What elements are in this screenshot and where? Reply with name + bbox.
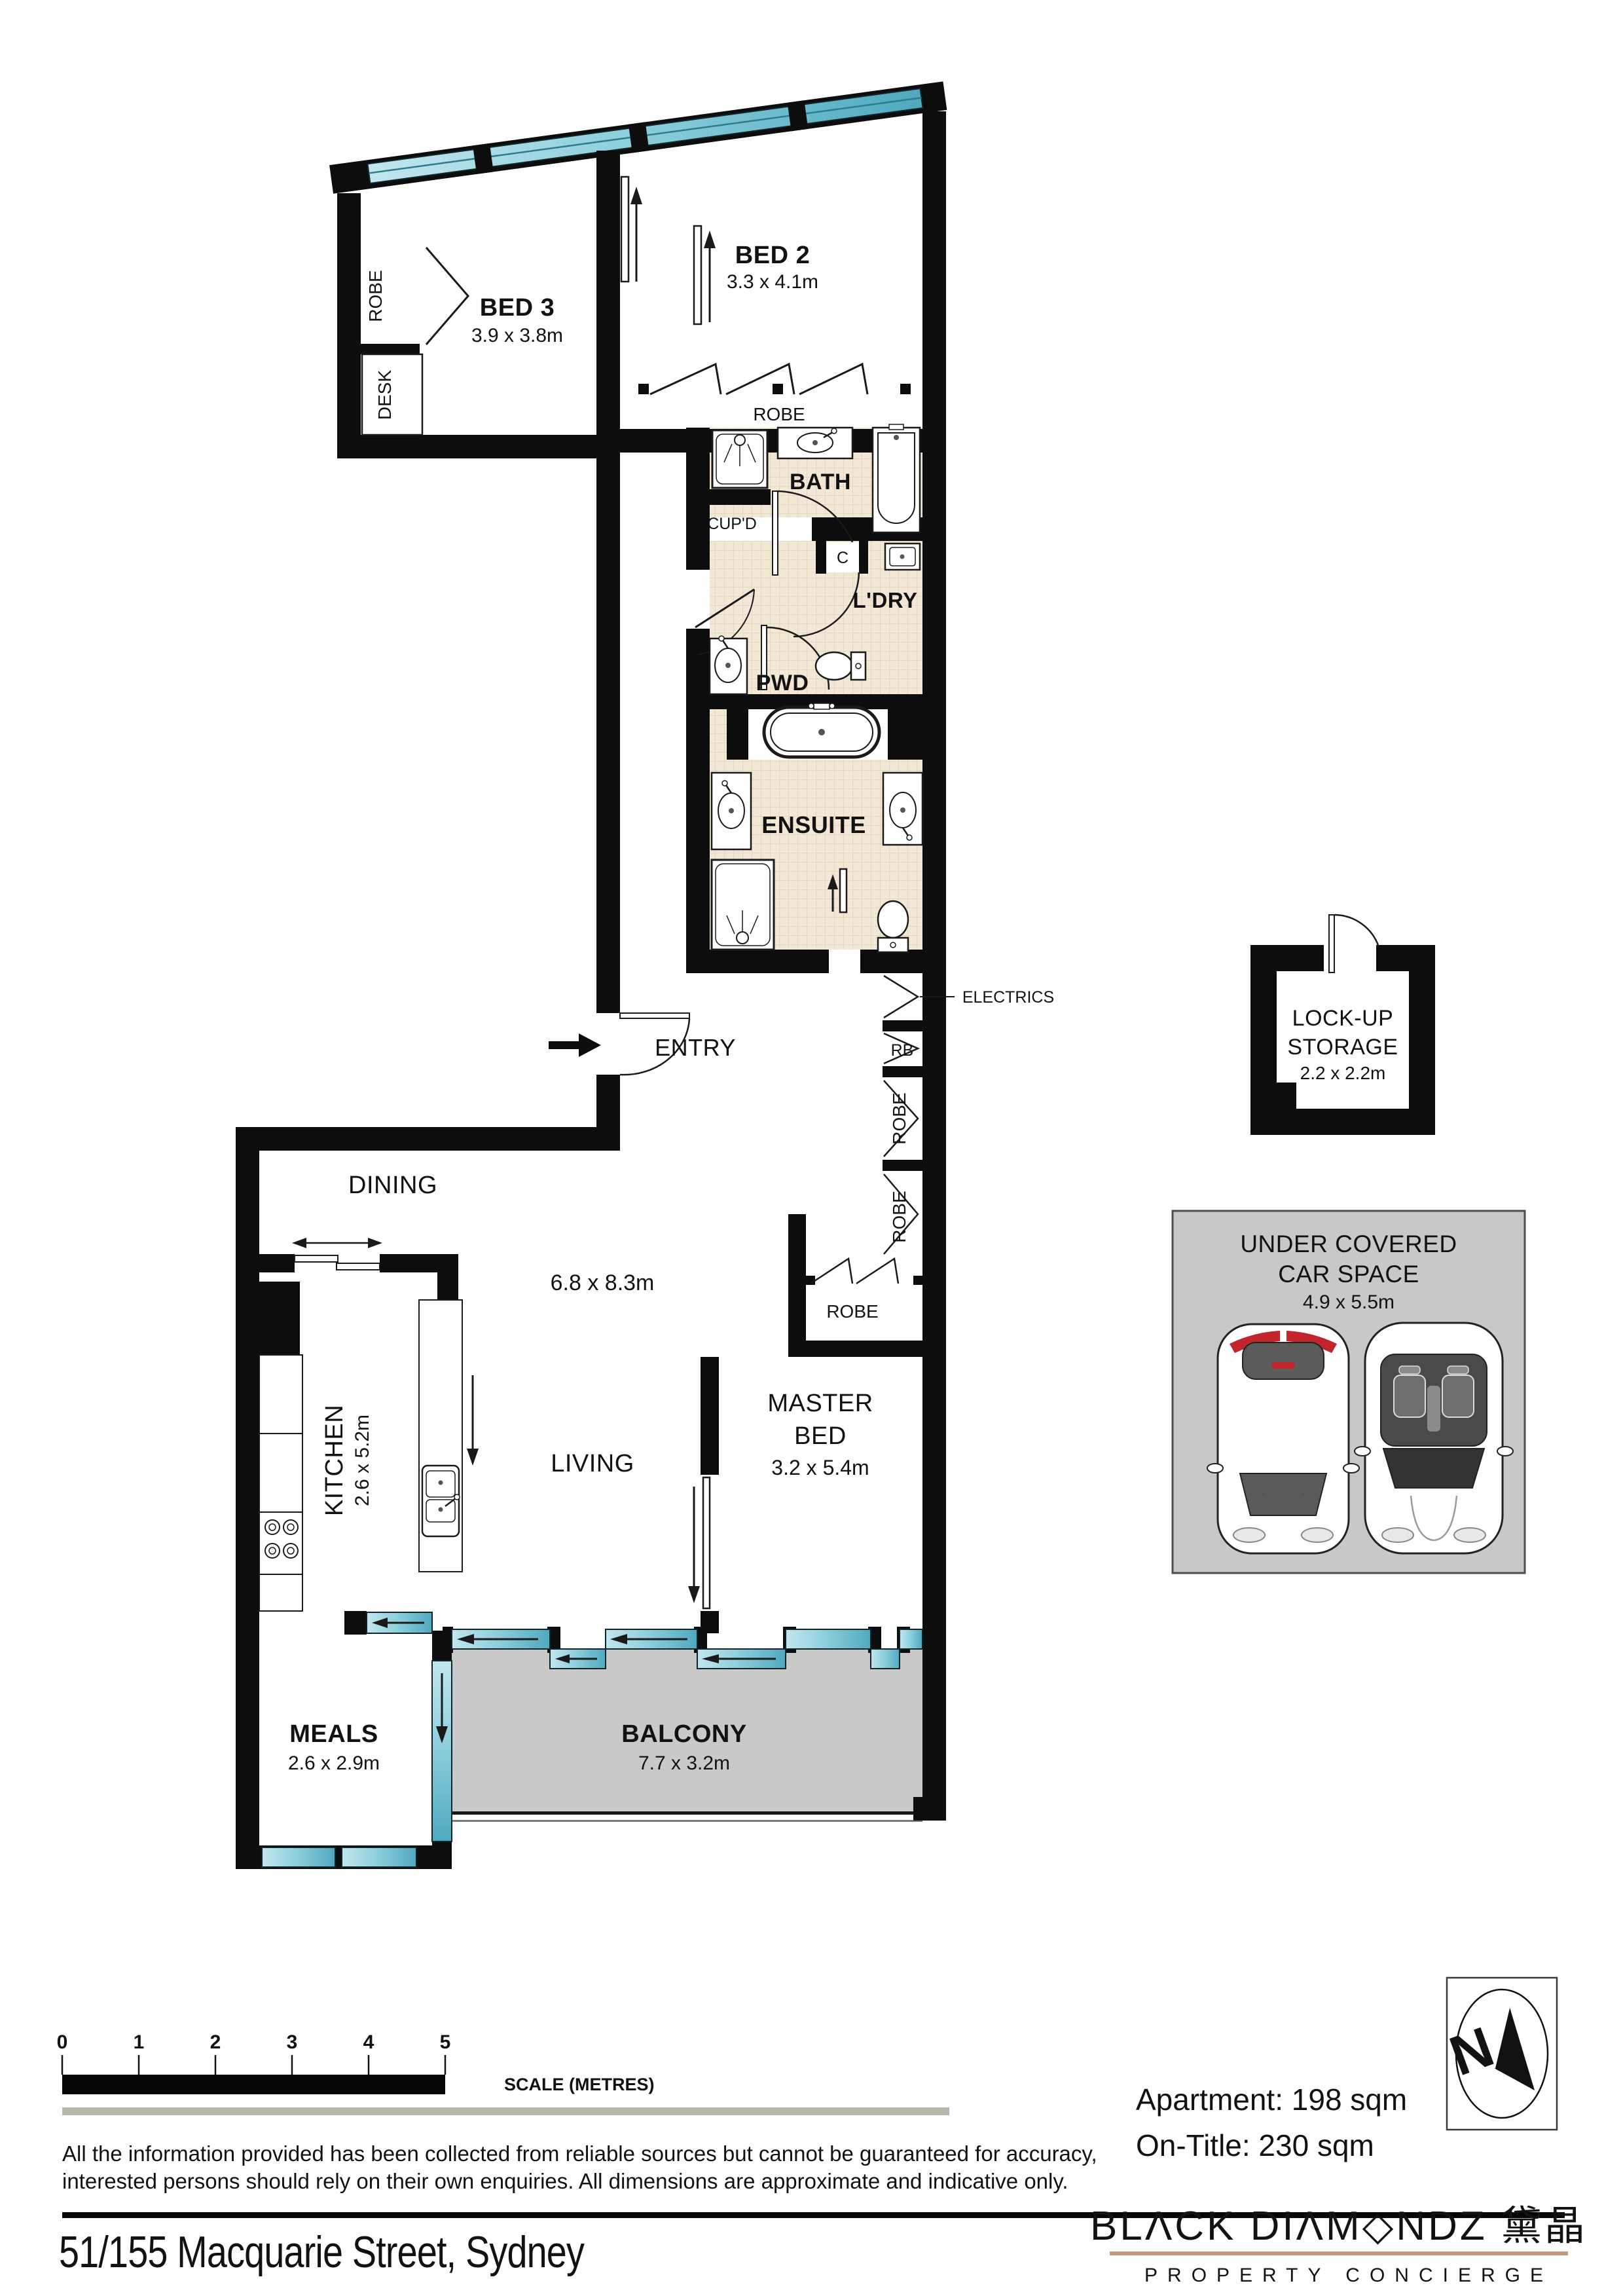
bed3-desk-label: DESK [374,370,395,420]
scale-tick-0: 0 [57,2031,68,2053]
meals-dims: 2.6 x 2.9m [288,1752,380,1774]
bed3-dims: 3.9 x 3.8m [471,325,563,346]
carspace-label-1: UNDER COVERED [1240,1231,1457,1257]
balcony-dims: 7.7 x 3.2m [638,1752,730,1774]
rb-label: RB [891,1041,914,1060]
car-convertible-icon [1355,1323,1513,1553]
storage-label-2: STORAGE [1287,1035,1398,1060]
apartment-area: Apartment: 198 sqm [1136,2083,1407,2117]
compass-icon: N [1442,1978,1557,2130]
carspace-dims: 4.9 x 5.5m [1303,1291,1395,1313]
scale-tick-3: 3 [287,2031,298,2053]
scale-tick-1: 1 [134,2031,145,2053]
robe1-label: ROBE [889,1092,909,1144]
address: 51/155 Macquarie Street, Sydney [59,2228,585,2277]
entry-label: ENTRY [655,1034,736,1061]
electrics-label: ELECTRICS [962,988,1054,1007]
walls [236,81,947,1869]
scale-tick-4: 4 [363,2031,374,2053]
bath-label: BATH [790,470,851,494]
pwd-label: PWD [756,671,809,695]
master-label-1: MASTER [767,1390,873,1417]
disclaimer-line-2: interested persons should rely on their … [62,2169,1068,2193]
on-title-area: On-Title: 230 sqm [1136,2128,1374,2162]
logo-wordmark: BLΛCK DIΛM◇NDZ 黛晶 [1090,2204,1588,2249]
balcony-label: BALCONY [621,1720,746,1748]
carspace-label-2: CAR SPACE [1278,1261,1419,1287]
kitchen-dims: 2.6 x 5.2m [352,1415,373,1506]
robe2-label: ROBE [889,1191,909,1242]
meals-label: MEALS [289,1720,378,1748]
bed2-dims: 3.3 x 4.1m [727,271,818,293]
kitchen-label: KITCHEN [321,1405,348,1516]
cupd-label: CUP'D [707,515,757,533]
living-label: LIVING [551,1450,634,1477]
bed3-robe-label: ROBE [365,270,386,322]
living-dims: 6.8 x 8.3m [551,1270,655,1295]
master-dims: 3.2 x 5.4m [771,1456,869,1479]
scale-tick-2: 2 [210,2031,221,2053]
ensuite-label: ENSUITE [761,811,866,838]
car-hatchback-icon [1207,1324,1359,1553]
logo-subtitle: PROPERTY CONCIERGE [1144,2265,1553,2286]
storage-label-1: LOCK-UP [1292,1006,1394,1031]
robe3-label: ROBE [826,1301,878,1322]
storage-dims: 2.2 x 2.2m [1300,1063,1386,1083]
bed3-label: BED 3 [480,294,555,322]
disclaimer-line-1: All the information provided has been co… [62,2141,1097,2166]
scale-units-label: SCALE (METRES) [504,2075,655,2094]
ldry-label: L'DRY [853,588,918,612]
c-label: C [837,549,848,567]
floorplan-page: BED 3 3.9 x 3.8m ROBE DESK BED 2 3.3 x 4… [0,0,1623,2296]
logo-underline [1110,2251,1568,2255]
scale-tick-5: 5 [440,2031,451,2053]
bed2-robe-label: ROBE [753,404,805,424]
bed2-label: BED 2 [735,242,810,269]
scale-bar: 0 1 2 3 4 5 SCALE (METRES) [57,2031,949,2115]
dining-label: DINING [348,1172,437,1199]
floorplan-drawing: BED 3 3.9 x 3.8m ROBE DESK BED 2 3.3 x 4… [0,0,1623,2296]
brand-logo: BLΛCK DIΛM◇NDZ 黛晶 PROPERTY CONCIERGE [1090,2204,1588,2286]
master-label-2: BED [794,1422,847,1450]
